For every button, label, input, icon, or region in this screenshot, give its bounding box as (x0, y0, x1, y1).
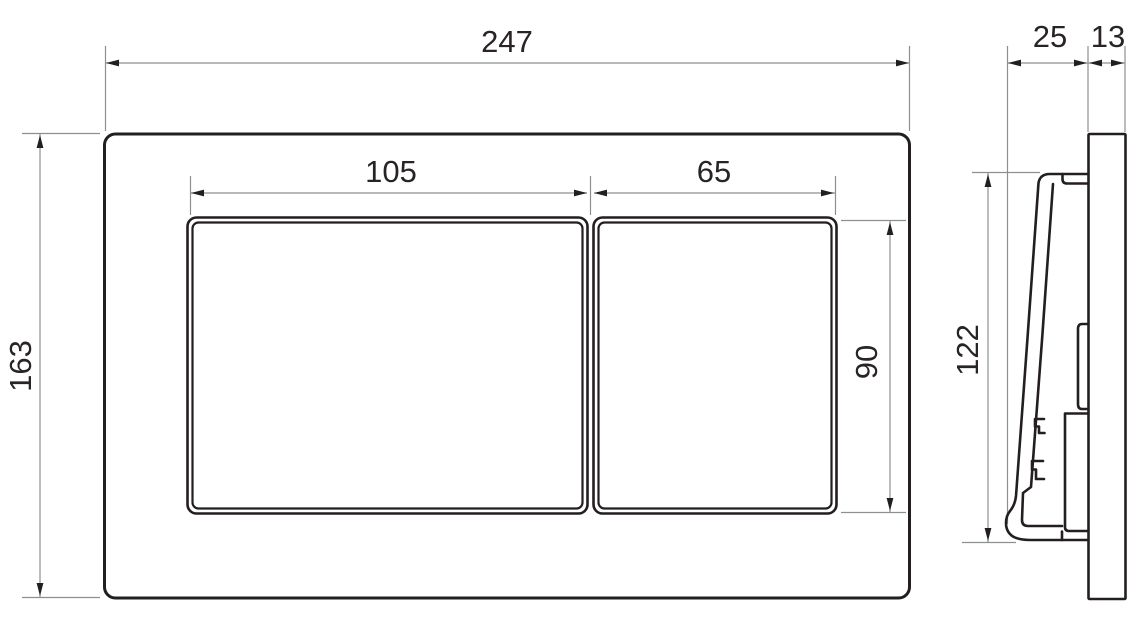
arrowhead (1074, 60, 1087, 67)
arrowhead (887, 498, 894, 511)
front-large-button-inner (193, 223, 583, 509)
arrowhead (594, 190, 607, 197)
side-button-rear-seat (1065, 414, 1088, 532)
front-view (105, 134, 910, 598)
front-plate-outline (105, 134, 910, 598)
dim-label-plate-width: 247 (457, 23, 557, 61)
arrowhead (574, 190, 587, 197)
side-plate-ridge (1078, 324, 1088, 409)
dim-label-side-button-height: 122 (949, 300, 987, 400)
side-button-inner-face (1022, 184, 1062, 526)
arrowhead (1008, 60, 1021, 67)
dim-label-plate-height: 163 (2, 316, 40, 416)
arrowhead (985, 528, 992, 541)
arrowhead (191, 190, 204, 197)
arrowhead (37, 135, 44, 148)
arrowhead (896, 60, 909, 67)
side-plate-outline (1089, 134, 1126, 599)
dim-label-plate-depth: 13 (1058, 18, 1136, 56)
arrowhead (1089, 60, 1102, 67)
side-button-outline (1006, 174, 1088, 540)
arrowhead (1111, 60, 1124, 67)
dim-label-large-button-width: 105 (341, 153, 441, 191)
side-button-top-step (1063, 174, 1089, 184)
side-view (1006, 134, 1126, 599)
arrowhead (887, 222, 894, 235)
arrowhead (985, 174, 992, 187)
technical-drawing-canvas: 247 105 65 163 90 122 25 13 (0, 0, 1136, 621)
arrowhead (106, 60, 119, 67)
dim-label-small-button-width: 65 (664, 153, 764, 191)
front-large-button-outer (188, 218, 588, 514)
front-small-button-inner (599, 223, 832, 509)
front-small-button-outer (594, 218, 837, 514)
arrowhead (821, 190, 834, 197)
front-small-button (594, 218, 837, 514)
arrowhead (37, 583, 44, 596)
dim-label-button-height: 90 (848, 312, 886, 412)
front-large-button (188, 218, 588, 514)
